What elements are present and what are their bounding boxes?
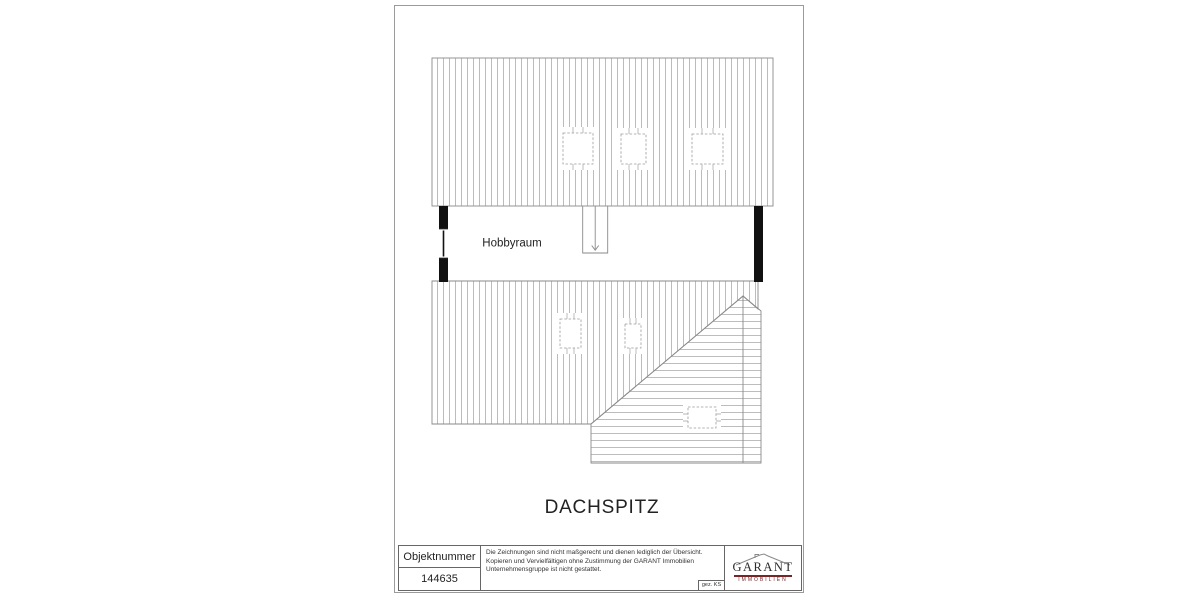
disclaimer-cell: Die Zeichnungen sind nicht maßgerecht un… — [481, 546, 725, 590]
object-number-cell: Objektnummer 144635 — [399, 546, 481, 590]
roof-window — [563, 133, 593, 164]
object-number-label: Objektnummer — [399, 546, 480, 568]
roof-window — [692, 134, 723, 164]
garant-logo: GARANT IMMOBILIEN — [733, 553, 793, 583]
right-wall — [754, 206, 763, 282]
roof-window — [688, 407, 716, 428]
disclaimer-line: Kopieren und Vervielfältigen ohne Zustim… — [486, 558, 719, 567]
signature-box: gez. KS — [698, 580, 724, 590]
logo-cell: GARANT IMMOBILIEN — [725, 546, 801, 590]
roof-window — [625, 324, 641, 348]
room-label: Hobbyraum — [482, 238, 541, 250]
object-number-value: 144635 — [399, 568, 480, 590]
disclaimer-line: Unternehmensgruppe ist nicht gestattet. — [486, 566, 719, 575]
roof-window — [621, 134, 646, 164]
staircase — [583, 206, 608, 253]
plan-sheet: Hobbyraum DACHSPITZ Objektnummer 144635 … — [394, 5, 804, 593]
signature-text: gez. KS — [702, 582, 721, 589]
plan-title: DACHSPITZ — [545, 497, 660, 518]
roof-window — [560, 319, 581, 348]
title-block: Objektnummer 144635 Die Zeichnungen sind… — [398, 545, 802, 591]
wall-window — [439, 229, 449, 258]
floor-plan-drawing: Hobbyraum DACHSPITZ — [395, 6, 803, 546]
upper-roof-windows — [558, 127, 728, 170]
disclaimer-line: Die Zeichnungen sind nicht maßgerecht un… — [486, 549, 719, 558]
brand-tagline: IMMOBILIEN — [738, 578, 787, 583]
brand-name: GARANT — [732, 561, 793, 574]
